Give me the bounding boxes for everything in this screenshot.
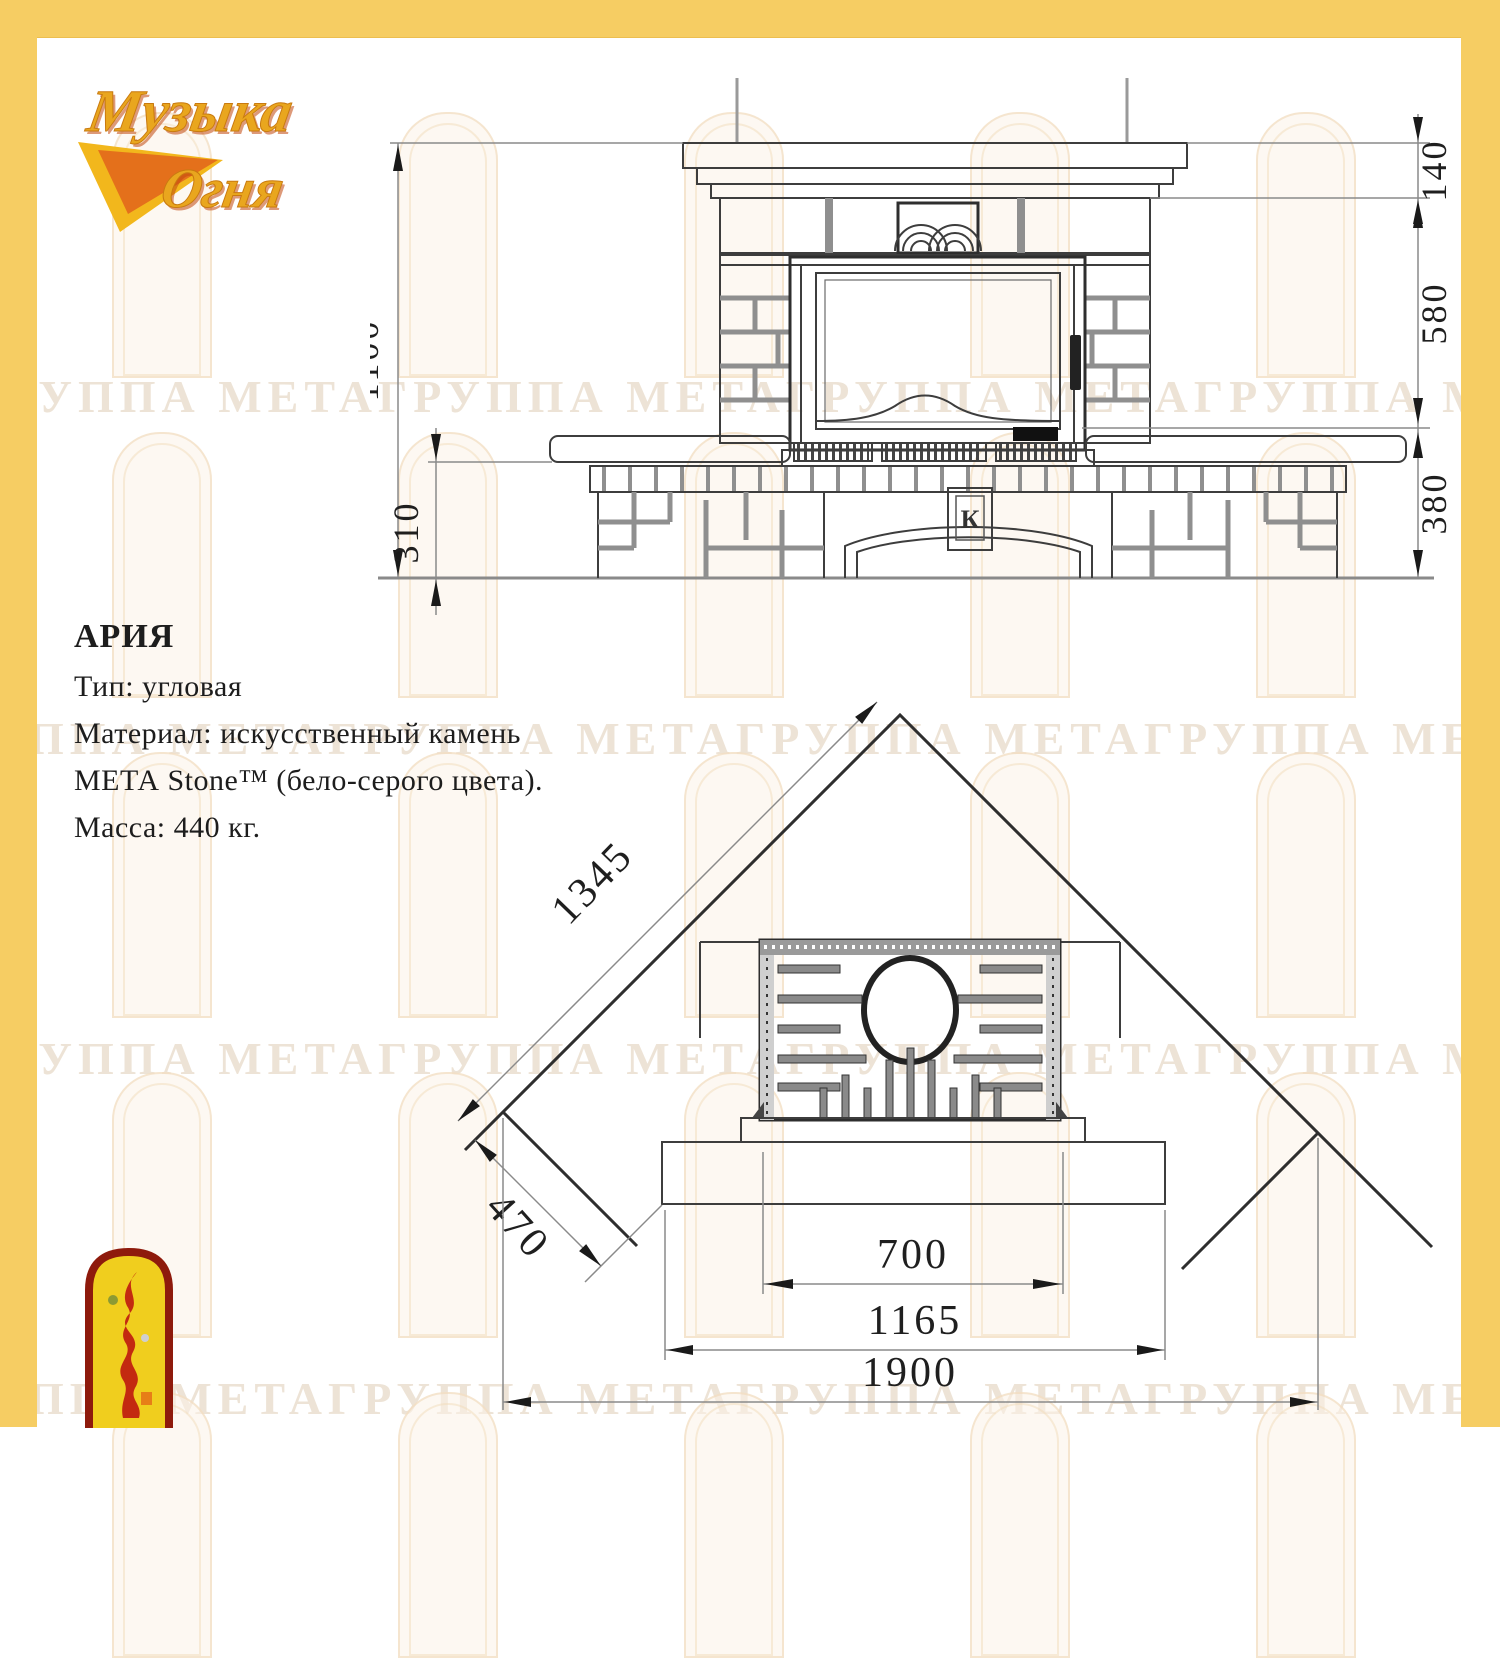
logo-text-line2: Огня [157, 158, 289, 220]
base-stone-pattern-right [1112, 492, 1337, 578]
page-frame-top [0, 0, 1500, 38]
product-material-line2: МЕТА Stone™ (бело-серого цвета). [74, 764, 543, 798]
bench-slab-right [1086, 436, 1406, 462]
dim-label-1165: 1165 [868, 1298, 962, 1344]
base-arch-inner [857, 537, 1080, 578]
dim-label-310: 310 [386, 501, 426, 564]
hearth-slab [782, 450, 1094, 466]
log-retainer-curve [816, 396, 1060, 422]
product-mass-line: Масса: 440 кг. [74, 811, 543, 845]
dim-label-1345: 1345 [543, 832, 643, 933]
watermark-arch [970, 1392, 1070, 1658]
firebox-plan [752, 940, 1068, 1120]
firebox [790, 257, 1085, 450]
air-vent [1013, 427, 1058, 441]
dim-label-140: 140 [1414, 139, 1454, 202]
product-material-line1: Материал: искусственный камень [74, 717, 543, 751]
page-frame-left [0, 0, 37, 1427]
dim-label-580: 580 [1414, 282, 1454, 345]
watermark-arch [684, 1392, 784, 1658]
logo-text-line1: Музыка [82, 78, 298, 144]
base-arch-outer [845, 527, 1092, 578]
dimension-700: 700 [763, 1152, 1063, 1294]
arch-flame-emblem [85, 1242, 175, 1428]
dim-label-470: 470 [476, 1184, 558, 1268]
heat-fins-left [778, 965, 866, 1091]
dim-label-380: 380 [1414, 472, 1454, 535]
chimney-stub-lines [737, 78, 1127, 143]
page-frame-right [1461, 0, 1500, 1427]
mantel-cornice [683, 143, 1187, 198]
base-stone-pattern-left [598, 492, 824, 578]
flue-outlet-circle [864, 958, 956, 1062]
brand-logo: Музыка Музыка Огня Огня [58, 42, 308, 247]
watermark-arch [398, 1392, 498, 1658]
dim-label-1900: 1900 [862, 1350, 958, 1396]
frieze [720, 198, 1150, 253]
dim-label-1100: 1100 [370, 319, 386, 402]
dimension-310: 310 [386, 428, 552, 615]
grill-band [794, 443, 1076, 461]
bench-slab-left [550, 436, 790, 462]
product-name: АРИЯ [74, 618, 543, 656]
dim-label-700: 700 [877, 1232, 949, 1278]
dimension-470: 470 [471, 1136, 662, 1282]
left-pilaster-bricks [720, 298, 790, 400]
front-elevation-drawing: К 1100 310 140 580 380 [370, 70, 1455, 630]
base-body: К [598, 488, 1337, 578]
product-info-block: АРИЯ Тип: угловая Материал: искусственны… [74, 618, 543, 858]
keystone-letter: К [961, 505, 980, 534]
base-platform-plan [662, 1142, 1165, 1204]
watermark-arch [112, 1392, 212, 1658]
right-pilaster-bricks [1085, 298, 1150, 400]
firebox-glass-door [816, 273, 1060, 429]
watermark-arch [1256, 1392, 1356, 1658]
door-handle [1070, 335, 1081, 390]
heat-fins-right [954, 965, 1042, 1091]
product-type-line: Тип: угловая [74, 670, 543, 704]
hearth-plan [741, 1118, 1085, 1142]
